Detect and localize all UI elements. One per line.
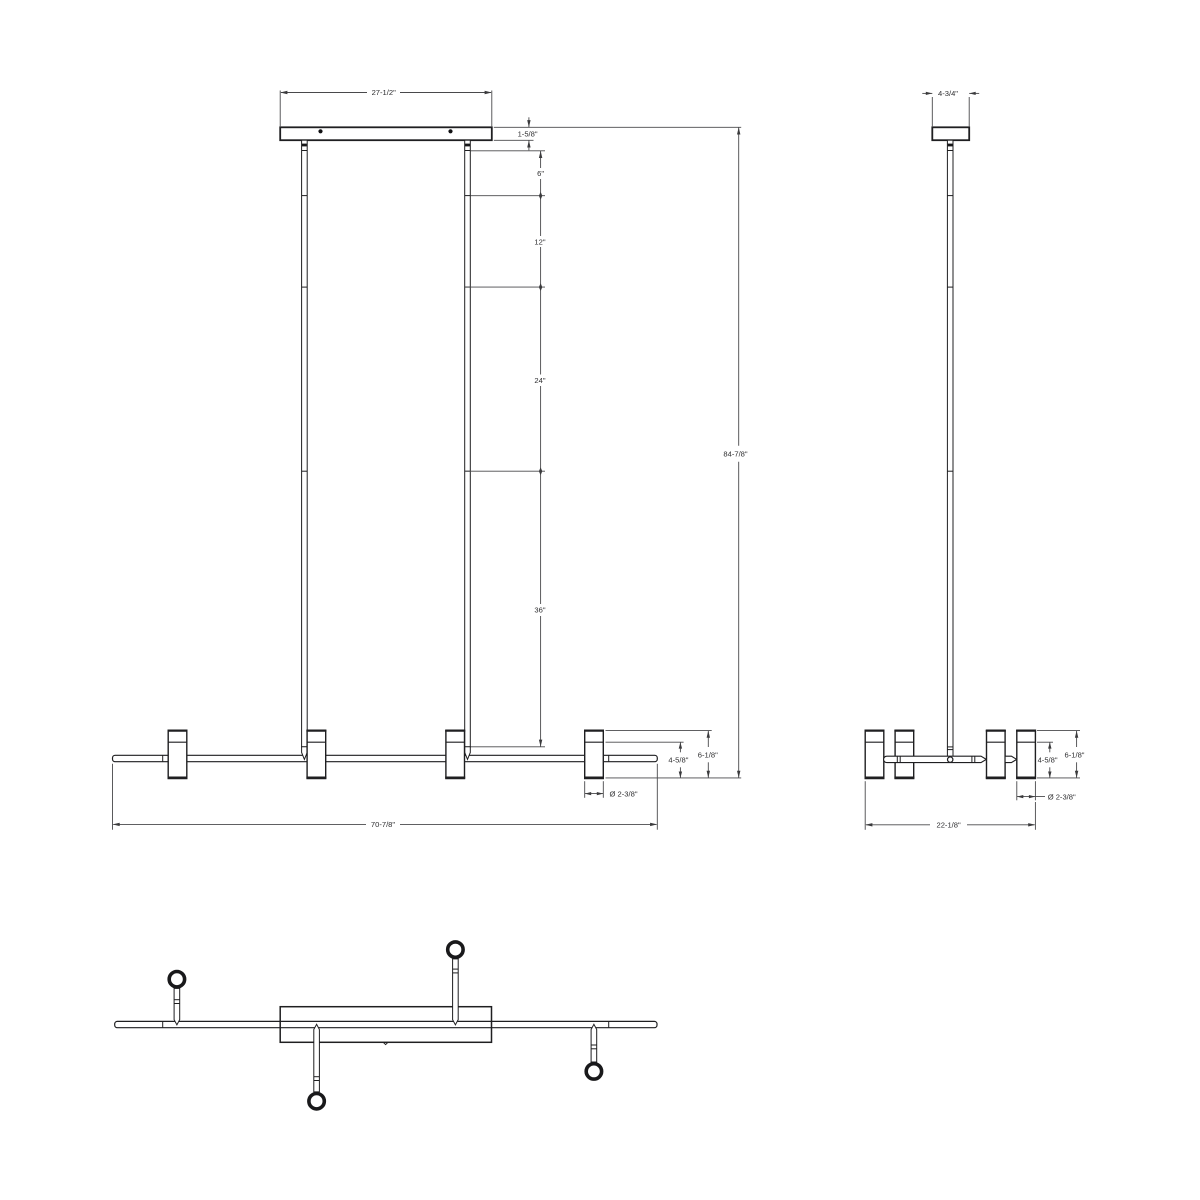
svg-text:1-5/8": 1-5/8"	[518, 130, 538, 139]
svg-text:24": 24"	[534, 376, 545, 385]
svg-text:22-1/8": 22-1/8"	[936, 821, 961, 830]
svg-text:12": 12"	[534, 237, 545, 246]
svg-text:4-3/4": 4-3/4"	[938, 89, 958, 98]
svg-text:27-1/2": 27-1/2"	[372, 88, 397, 97]
svg-text:6": 6"	[537, 169, 544, 178]
svg-text:36": 36"	[534, 606, 545, 615]
svg-text:4-5/8": 4-5/8"	[668, 755, 688, 764]
svg-text:6-1/8": 6-1/8"	[698, 750, 718, 759]
svg-text:70-7/8": 70-7/8"	[371, 820, 396, 829]
svg-text:Ø 2-3/8": Ø 2-3/8"	[1048, 792, 1076, 801]
svg-text:4-5/8": 4-5/8"	[1038, 755, 1058, 764]
svg-text:84-7/8": 84-7/8"	[723, 450, 748, 459]
svg-text:6-1/8": 6-1/8"	[1064, 750, 1084, 759]
svg-text:Ø 2-3/8": Ø 2-3/8"	[610, 789, 638, 798]
